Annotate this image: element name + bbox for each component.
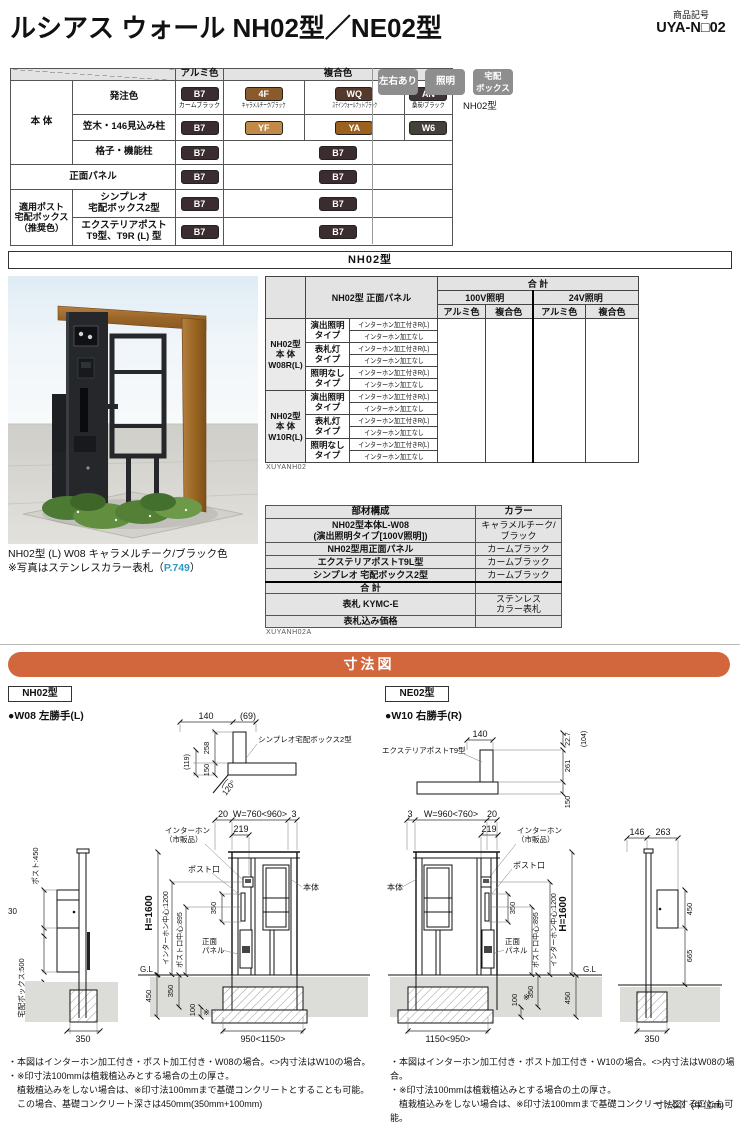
color-chip-b7: B7 xyxy=(319,225,357,239)
nh-elevation: 20 W=760<960> 3 219 インターホン （市販品） xyxy=(138,809,370,1044)
chip-cell: B7 カームブラック xyxy=(176,81,224,115)
opt-with-intercom: インターホン加工付きR(L) xyxy=(350,319,438,331)
table-row: 表札 KYMC-E ステンレス カラー表札 xyxy=(266,594,562,616)
row-header-kasagi: 笠木・146見込み柱 xyxy=(73,115,176,141)
opt-no-intercom: インターホン加工なし xyxy=(350,355,438,367)
dim-label: 150 xyxy=(202,764,211,777)
dim-label: 350 xyxy=(526,986,535,999)
component-color: キャラメルチーク/ ブラック xyxy=(476,519,562,543)
table-row: NH02型 本 体 W08R(L) 演出照明 タイプ インターホン加工付きR(L… xyxy=(266,319,639,331)
dim-label: ポスト口中心:895 xyxy=(531,912,540,968)
badge-left-right: 左右あり xyxy=(378,69,418,95)
price-cell-24v-fukugo xyxy=(586,319,639,463)
dim-label: H=1600 xyxy=(144,895,155,931)
badge-lighting: 照明 xyxy=(425,69,465,95)
component-name: シンプレオ 宅配ボックス2型 xyxy=(266,569,476,582)
footnote-line: この場合、基礎コンクリート深さは450mm(350mm+100mm) xyxy=(8,1098,380,1112)
dim-label: 450 xyxy=(563,992,572,1005)
opt-no-intercom: インターホン加工なし xyxy=(350,451,438,463)
chip-cell: B7 xyxy=(176,190,224,218)
caption-page-link[interactable]: P.749 xyxy=(164,562,190,574)
opt-with-intercom: インターホン加工付きR(L) xyxy=(350,439,438,451)
table-row: 合 計 xyxy=(266,582,562,594)
row-header-order-color: 発注色 xyxy=(73,81,176,115)
dim-label: 30 xyxy=(8,907,17,916)
badge-caption: NH02型 xyxy=(463,98,497,112)
dim-label: 146 xyxy=(629,827,644,837)
dim-label: 20 xyxy=(487,809,497,819)
chip-cell: B7 xyxy=(176,218,224,246)
footnote-line: 植栽植込みをしない場合は、※印寸法100mmまで基礎コンクリートとすることも可能… xyxy=(8,1084,380,1098)
header-total: 合 計 xyxy=(438,277,639,291)
footnotes-left: ・本図はインターホン加工付き・ポスト加工付き・W08の場合。<>内寸法はW10の… xyxy=(8,1056,380,1112)
footnote-line: ・※印寸法100mmは植栽植込みとする場合の土の厚さ。 xyxy=(390,1084,738,1098)
part-label-front-panel: パネル xyxy=(505,946,528,955)
component-name: 表札 KYMC-E xyxy=(266,594,476,616)
type-nameplate-light: 表札灯 タイプ xyxy=(306,415,350,439)
color-chip-b7: B7 xyxy=(319,170,357,184)
header-front-panel: NH02型 正面パネル xyxy=(306,277,438,319)
part-label-delivery-box: シンプレオ宅配ボックス2型 xyxy=(258,734,352,744)
chip-cell: B7 xyxy=(224,218,453,246)
dim-label: 219 xyxy=(481,824,496,834)
opt-with-intercom: インターホン加工付きR(L) xyxy=(350,391,438,403)
color-chip-4f-label: キャラメルチーク/ブラック xyxy=(242,102,286,109)
price-cell-100v-fukugo xyxy=(486,319,533,463)
dim-label: 665 xyxy=(685,950,694,963)
dim-label: 350 xyxy=(166,985,175,998)
color-chip-4f: 4F xyxy=(245,87,283,101)
part-label-intercom: （市販品） xyxy=(165,834,203,844)
dim-label: 22.7 xyxy=(565,732,572,746)
ne02-dimension-drawing: 140 22.7 (104) エクステリアポストT9型 261 150 3 W=… xyxy=(380,700,740,1052)
ne-cap-detail: 140 22.7 (104) エクステリアポストT9型 261 150 xyxy=(382,729,588,808)
price-table: NH02型 正面パネル 合 計 100V照明 24V照明 アルミ色 複合色 アル… xyxy=(265,276,639,463)
component-name: NH02型本体L-W08 (演出照明タイプ[100V照明]) xyxy=(266,519,476,543)
photo-caption-line2: ※写真はステンレスカラー表札（P.749） xyxy=(8,561,270,575)
ground-line-label: G.L xyxy=(583,965,596,974)
type-no-light: 照明なし タイプ xyxy=(306,367,350,391)
dim-label: 100 xyxy=(510,994,519,1007)
dim-label: (119) xyxy=(184,754,191,770)
dim-label: 350 xyxy=(209,902,218,915)
chip-cell: B7 xyxy=(176,165,224,190)
opt-no-intercom: インターホン加工なし xyxy=(350,427,438,439)
footnotes-right: ・本図はインターホン加工付き・ポスト加工付き・W10の場合。<>内寸法はW08の… xyxy=(390,1056,738,1123)
row-header-hontai: 本 体 xyxy=(11,81,73,165)
component-table: 部材構成 カラー NH02型本体L-W08 (演出照明タイプ[100V照明]) … xyxy=(265,505,562,628)
header-fukugo: 複合色 xyxy=(486,305,533,319)
dim-label: 258 xyxy=(202,742,211,755)
dim-label: 150 xyxy=(563,796,572,809)
type-stage-light: 演出照明 タイプ xyxy=(306,391,350,415)
part-label-intercom: インターホン xyxy=(165,826,210,835)
dim-label: H=1600 xyxy=(558,896,569,932)
dim-label: 1150<950> xyxy=(426,1034,471,1044)
footnote-line: ・※印寸法100mmは植栽植込みとする場合の土の厚さ。 xyxy=(8,1070,380,1084)
chip-cell: B7 xyxy=(224,165,453,190)
header-alumi: アルミ色 xyxy=(438,305,486,319)
component-header-name: 部材構成 xyxy=(266,506,476,519)
nh-cap-detail: 140 (69) シンプレオ宅配ボックス2型 258 150 (119) 120… xyxy=(180,711,352,797)
chip-cell: B7 xyxy=(224,190,453,218)
component-name: エクステリアポストT9L型 xyxy=(266,556,476,569)
dim-label: 140 xyxy=(472,729,487,739)
row-header-simpleo: シンプレオ 宅配ボックス2型 xyxy=(73,190,176,218)
blank-header-cell xyxy=(266,277,306,319)
row-header-panel: 正面パネル xyxy=(11,165,176,190)
section-rule xyxy=(0,644,740,645)
product-code-label: 商品記号 xyxy=(648,10,734,20)
dim-label: 140 xyxy=(198,711,213,721)
dim-label: 20 xyxy=(218,809,228,819)
table-row: NH02型本体L-W08 (演出照明タイプ[100V照明]) キャラメルチーク/… xyxy=(266,519,562,543)
component-color xyxy=(476,615,562,627)
dim-label: 950<1150> xyxy=(241,1034,286,1044)
part-label-front-panel: パネル xyxy=(202,946,225,955)
photo-caption-line1: NH02型 (L) W08 キャラメルチーク/ブラック色 xyxy=(8,547,270,561)
nh02-dimension-drawing: 140 (69) シンプレオ宅配ボックス2型 258 150 (119) 120… xyxy=(0,700,380,1052)
product-code: 商品記号 UYA-N□02 xyxy=(648,10,734,36)
nh02-section-banner: NH02型 xyxy=(8,251,732,269)
footnote-line: ・本図はインターホン加工付き・ポスト加工付き・W10の場合。<>内寸法はW08の… xyxy=(390,1056,738,1084)
dim-label: 350 xyxy=(75,1034,90,1044)
color-chip-b7: B7 xyxy=(181,87,219,101)
part-label-front-panel: 正面 xyxy=(505,937,520,946)
unit-note: 寸法図：(単位㎜) xyxy=(655,1098,724,1111)
color-chip-wq: WQ xyxy=(335,87,373,101)
table-code: XUYANH02A xyxy=(266,629,312,636)
type-nameplate-light: 表札灯 タイプ xyxy=(306,343,350,367)
dim-label: 100 xyxy=(188,1004,197,1017)
component-name: 表札込み価格 xyxy=(266,615,476,627)
component-color: カームブラック xyxy=(476,543,562,556)
header-100v: 100V照明 xyxy=(438,291,533,305)
product-code-value: UYA-N□02 xyxy=(648,20,734,36)
opt-with-intercom: インターホン加工付きR(L) xyxy=(350,343,438,355)
dim-label: 3 xyxy=(407,809,412,819)
note-star: ※ xyxy=(203,1008,210,1017)
color-chip-b7: B7 xyxy=(319,197,357,211)
dim-label: (104) xyxy=(581,731,588,747)
color-chip-an-label: 桑炭/ブラック xyxy=(410,102,448,109)
ground-line-label: G.L xyxy=(140,965,153,974)
part-label-body: 本体 xyxy=(387,882,403,892)
type-no-light: 照明なし タイプ xyxy=(306,439,350,463)
header-24v: 24V照明 xyxy=(533,291,639,305)
color-chip-b7: B7 xyxy=(181,197,219,211)
opt-no-intercom: インターホン加工なし xyxy=(350,403,438,415)
part-label-post-slot: ポスト口 xyxy=(188,865,220,874)
row-header-exterior-post: エクステリアポスト T9型、T9R (L) 型 xyxy=(73,218,176,246)
dim-label: 350 xyxy=(644,1034,659,1044)
dim-label: W=960<760> xyxy=(424,809,478,819)
dim-label: ポスト口中心:895 xyxy=(175,912,184,968)
group-w10: NH02型 本 体 W10R(L) xyxy=(266,391,306,463)
dim-label: 261 xyxy=(563,760,572,773)
dim-label: W=760<960> xyxy=(233,809,287,819)
header-alumi: アルミ色 xyxy=(533,305,586,319)
chip-cell: B7 xyxy=(224,141,453,165)
type-stage-light: 演出照明 タイプ xyxy=(306,319,350,343)
component-header-color: カラー xyxy=(476,506,562,519)
row-header-post-group: 適用ポスト 宅配ボックス （推奨色） xyxy=(11,190,73,246)
part-label-front-panel: 正面 xyxy=(202,937,217,946)
opt-no-intercom: インターホン加工なし xyxy=(350,331,438,343)
feature-badges: 左右あり 照明 宅配 ボックス xyxy=(378,69,516,95)
color-chip-b7: B7 xyxy=(181,146,219,160)
table-row: エクステリアポストT9L型 カームブラック xyxy=(266,556,562,569)
product-photo xyxy=(8,276,258,544)
chip-cell: 4F キャラメルチーク/ブラック xyxy=(224,81,305,115)
ne-elevation: 3 W=960<760> 20 219 インターホン （市販品） xyxy=(387,809,602,1044)
color-chip-b7: B7 xyxy=(181,121,219,135)
color-chip-b7: B7 xyxy=(319,146,357,160)
col-header-alumi: アルミ色 xyxy=(176,69,224,81)
component-color: カームブラック xyxy=(476,556,562,569)
dim-label: 219 xyxy=(233,824,248,834)
dim-label: (69) xyxy=(240,711,256,721)
table-row: 表札込み価格 xyxy=(266,615,562,627)
group-w08: NH02型 本 体 W08R(L) xyxy=(266,319,306,391)
caption-suffix: ） xyxy=(190,562,201,574)
color-chip-yf: YF xyxy=(245,121,283,135)
price-cell-24v-alumi xyxy=(533,319,586,463)
component-color: カームブラック xyxy=(476,569,562,582)
component-color xyxy=(476,582,562,594)
catalog-page: ルシアス ウォール NH02型／NE02型 商品記号 UYA-N□02 アルミ色… xyxy=(0,0,740,1123)
dim-label: 450 xyxy=(685,903,694,916)
price-cell-100v-alumi xyxy=(438,319,486,463)
component-name: 合 計 xyxy=(266,582,476,594)
color-chip-b7: B7 xyxy=(181,170,219,184)
dim-label: 3 xyxy=(291,809,296,819)
color-chip-b7-label: カームブラック xyxy=(178,102,221,109)
table-row: NH02型用正面パネル カームブラック xyxy=(266,543,562,556)
row-header-koshi: 格子・機能柱 xyxy=(73,141,176,165)
color-chip-ya: YA xyxy=(335,121,373,135)
color-chip-w6: W6 xyxy=(409,121,447,135)
dim-label: インターホン中心:1200 xyxy=(161,891,170,965)
badge-delivery-box: 宅配 ボックス xyxy=(473,69,513,95)
photo-caption: NH02型 (L) W08 キャラメルチーク/ブラック色 ※写真はステンレスカラ… xyxy=(8,547,270,575)
section-divider xyxy=(372,68,373,244)
color-chip-wq-label: ステインウォールナット/ブラック xyxy=(332,102,377,109)
dim-label: 263 xyxy=(655,827,670,837)
opt-no-intercom: インターホン加工なし xyxy=(350,379,438,391)
part-label-intercom: インターホン xyxy=(517,826,562,835)
color-chip-b7: B7 xyxy=(181,225,219,239)
chip-cell: YF xyxy=(224,115,305,141)
part-label-post-slot: ポスト口 xyxy=(513,861,545,870)
opt-with-intercom: インターホン加工付きR(L) xyxy=(350,415,438,427)
dim-label: 宅配ボックス:500 xyxy=(16,958,26,1017)
part-label-exterior-post: エクステリアポストT9型 xyxy=(382,746,466,755)
dim-label: インターホン中心:1200 xyxy=(549,893,558,967)
nh-side-view: ポスト:450 30 宅配ボックス:500 135 350 xyxy=(8,847,118,1044)
component-name: NH02型用正面パネル xyxy=(266,543,476,556)
dim-label: 450 xyxy=(144,990,153,1003)
table-row: シンプレオ 宅配ボックス2型 カームブラック xyxy=(266,569,562,582)
part-label-intercom: （市販品） xyxy=(517,834,555,844)
dim-label: 350 xyxy=(508,902,517,915)
caption-prefix: ※写真はステンレスカラー表札（ xyxy=(8,562,164,574)
opt-with-intercom: インターホン加工付きR(L) xyxy=(350,367,438,379)
page-title: ルシアス ウォール NH02型／NE02型 xyxy=(10,8,442,45)
chip-cell: YA xyxy=(304,115,404,141)
chip-cell: B7 xyxy=(176,141,224,165)
header-fukugo: 複合色 xyxy=(586,305,639,319)
footnote-line: ・本図はインターホン加工付き・ポスト加工付き・W08の場合。<>内寸法はW10の… xyxy=(8,1056,380,1070)
component-color: ステンレス カラー表札 xyxy=(476,594,562,616)
ne-side-view: 146 263 450 665 350 xyxy=(618,827,722,1044)
part-label-body: 本体 xyxy=(303,882,319,892)
dimension-banner: 寸法図 xyxy=(8,652,730,677)
diagonal-header-cell xyxy=(11,69,176,81)
chip-cell: B7 xyxy=(176,115,224,141)
dim-label: ポスト:450 xyxy=(31,847,40,884)
table-code: XUYANH02 xyxy=(266,464,306,471)
chip-cell: W6 xyxy=(404,115,452,141)
